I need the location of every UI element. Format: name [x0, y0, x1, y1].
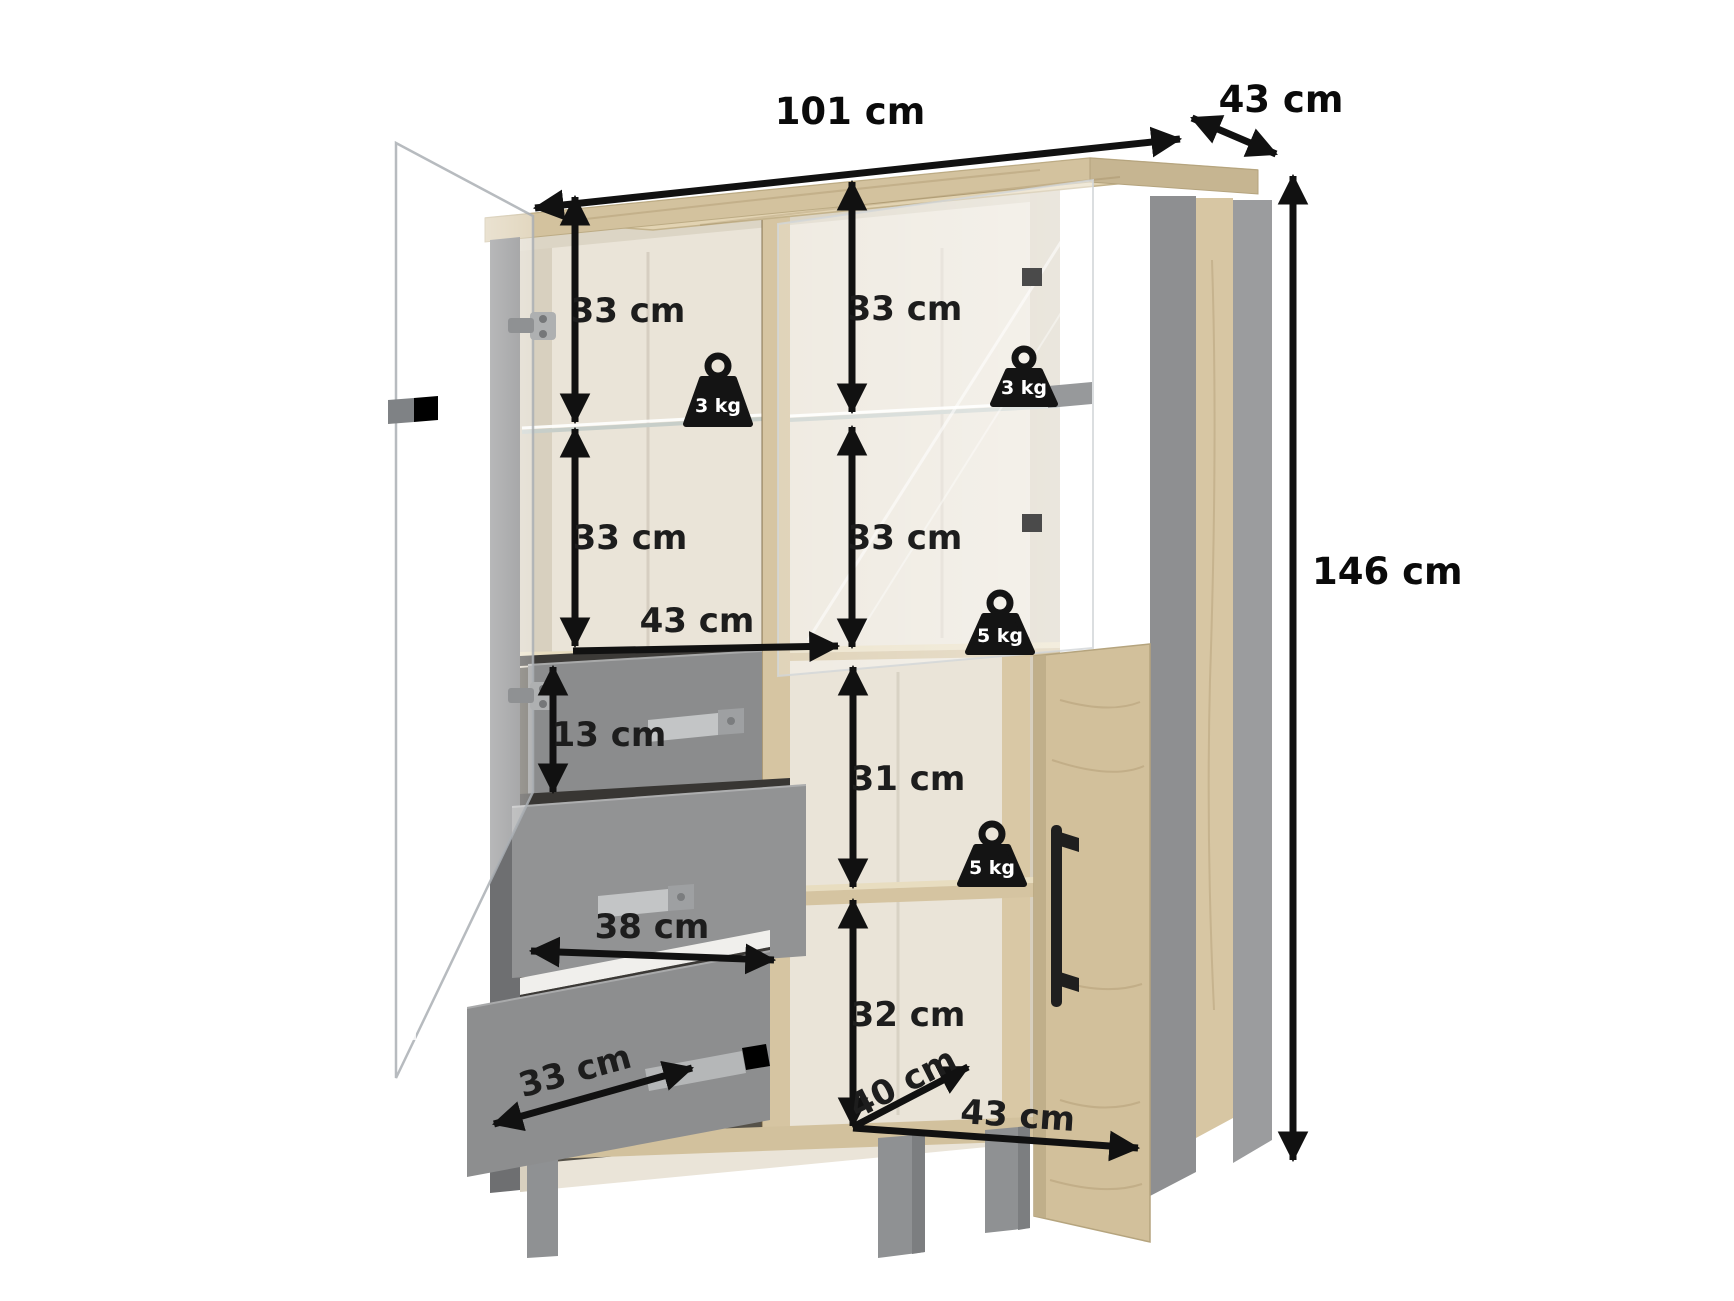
oak-door-open [1034, 644, 1150, 1242]
arrow-inner-width-43 [573, 646, 838, 651]
cabinet-dimension-illustration: 101 cm 43 cm 146 cm 33 cm 33 cm 33 cm 33… [0, 0, 1734, 1301]
label-upper-left-33: 33 cm [571, 291, 686, 331]
right-frame-post-rear [1233, 200, 1272, 1163]
right-frame-post-front [1150, 196, 1196, 1196]
weight-label: 5 kg [969, 857, 1015, 879]
weight-label: 3 kg [1001, 377, 1047, 399]
right-side-frame [1150, 196, 1272, 1196]
glass-door-right [778, 180, 1093, 676]
label-width: 101 cm [775, 90, 926, 133]
label-height: 146 cm [1312, 550, 1463, 593]
label-middle-right-33: 33 cm [848, 518, 963, 558]
glass-clamp-top [1022, 268, 1042, 286]
label-upper-right-33: 33 cm [848, 289, 963, 329]
weight-label: 5 kg [977, 625, 1023, 647]
leg-center-shade [912, 1134, 925, 1254]
glass-clamp-bottom [1022, 514, 1042, 532]
glass-pane-right [778, 180, 1093, 676]
label-inner-width-43: 43 cm [640, 601, 755, 641]
label-depth: 43 cm [1219, 78, 1344, 121]
label-lower-32: 32 cm [851, 995, 966, 1035]
arrow-depth [1192, 118, 1276, 154]
weight-label: 3 kg [695, 395, 741, 417]
label-drawer-13: 13 cm [552, 715, 667, 755]
label-lower-width-43: 43 cm [959, 1092, 1076, 1140]
glass-door-left-handle [388, 396, 438, 424]
label-middle-left-33: 33 cm [573, 518, 688, 558]
label-lower-31: 31 cm [851, 759, 966, 799]
label-drawer-38: 38 cm [595, 907, 710, 947]
diagram-canvas: 101 cm 43 cm 146 cm 33 cm 33 cm 33 cm 33… [0, 0, 1734, 1301]
